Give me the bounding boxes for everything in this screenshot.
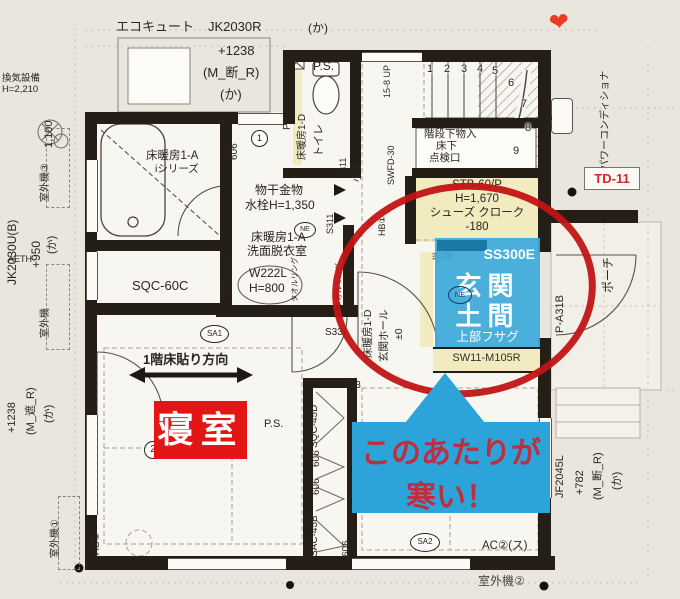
wall: [85, 240, 232, 251]
label-tenkenko: 点検口: [429, 153, 461, 164]
wall: [538, 50, 551, 222]
cold-arrow-icon: [405, 373, 485, 423]
wall: [85, 112, 238, 124]
step-4: 4: [477, 64, 483, 76]
step-3: 3: [461, 64, 467, 76]
outside-steps: [556, 388, 640, 438]
label-bath-heating: 床暖房1-A: [146, 150, 198, 162]
label-w222l: W222L: [249, 267, 287, 280]
label-suisen: 水栓H=1,350: [245, 199, 315, 212]
label-toilet-heating: 床暖房1-D: [297, 114, 309, 160]
label-p1238: +1238: [218, 44, 255, 58]
sa1-mark: SA1: [200, 325, 229, 343]
ne-mark-entrance: NE: [448, 286, 472, 304]
label-m-sha-r: (M_遮_R): [25, 387, 37, 435]
window: [352, 558, 470, 570]
window: [362, 52, 422, 62]
label-d606-d: 606: [341, 540, 353, 557]
label-komado: 小窓: [352, 162, 364, 182]
label-kanki1: 換気設備: [2, 74, 40, 84]
window: [168, 558, 286, 570]
label-wash-heating: 床暖房1-A: [251, 231, 306, 244]
label-gaiki1: 室外機①: [50, 519, 62, 558]
bedroom-badge: 寝室: [154, 401, 247, 459]
wall: [412, 168, 538, 178]
label-bath-series: iシリーズ: [155, 164, 199, 175]
label-toilet: トイレ: [313, 124, 325, 157]
label-s311a: S311: [337, 158, 349, 178]
wall: [412, 118, 538, 128]
label-h800: H=800: [249, 282, 285, 295]
label-gaiki3: 室外機③: [40, 163, 52, 202]
label-swfd30: SWFD-30: [385, 145, 397, 185]
label-s311b: S311: [324, 214, 336, 234]
entrance-highlight: SS300E 玄関 土間 上部フサグ NE: [435, 238, 540, 347]
label-jk2030u: JK2030U(B): [6, 220, 18, 285]
label-kanki2: H=2,210: [2, 85, 38, 95]
label-porch: ポーチ: [602, 257, 614, 293]
label-powercond: パワーコンディショナ: [600, 71, 612, 170]
label-up: 15-8 UP: [381, 65, 393, 98]
wall: [85, 556, 555, 570]
step-9: 9: [513, 146, 519, 158]
bathtub: [101, 124, 222, 236]
td11-tag: TD-11: [584, 167, 640, 190]
label-d606-top: 606: [229, 143, 241, 160]
label-monoire: 階段下物入: [424, 129, 477, 140]
label-towel1: タオルリング: [219, 253, 231, 298]
label-sac45b: SAC-45B: [309, 515, 321, 557]
cold-callout: このあたりが 寒い！: [352, 422, 550, 513]
window: [238, 113, 284, 125]
floorplan-canvas: エコキュート JK2030R +1238 (M_断_R) (か) (か) P.S…: [0, 0, 680, 599]
label-floor-direction: 1階床貼り方向: [143, 353, 228, 367]
label-gaiki2: 室外機②: [478, 575, 525, 588]
step-6: 6: [508, 78, 514, 90]
label-d606-c: 606: [311, 478, 323, 495]
wall: [350, 50, 361, 178]
label-jk2030r: JK2030R: [208, 20, 261, 34]
label-ka4: (か): [611, 472, 623, 490]
entrance-highlight-tab: [437, 240, 487, 251]
entrance-note: 上部フサグ: [435, 326, 540, 345]
window: [86, 252, 98, 300]
label-jf2045l: JF2045L: [554, 455, 566, 498]
label-ph: PH: [282, 116, 294, 130]
label-sqc45d: SQC-45D: [309, 405, 321, 448]
label-p782: +782: [574, 470, 586, 495]
step-8: 8: [525, 123, 531, 135]
label-gaiki: 室外機: [40, 308, 52, 338]
window: [86, 160, 98, 232]
cold-callout-line1: このあたりが: [352, 428, 550, 472]
step-7: 7: [521, 99, 527, 111]
step-5: 5: [492, 66, 498, 78]
step-1: 1: [427, 64, 433, 76]
label-l1: ①L: [544, 115, 556, 130]
label-ka3: (か): [43, 405, 55, 423]
wall: [220, 112, 232, 251]
label-s33b: S33: [343, 381, 361, 392]
label-aeth: AETH: [8, 255, 32, 265]
label-ac2: AC②(ス): [482, 540, 527, 552]
label-p1238-left: +1238: [6, 402, 18, 433]
circled-1: 1: [251, 130, 268, 147]
label-ka-top: (か): [308, 22, 328, 35]
wall: [85, 303, 232, 315]
label-ps-bedroom: P.S.: [264, 419, 283, 431]
label-ac1: AC①: [91, 532, 103, 555]
label-m-dan-r: (M_断_R): [203, 66, 259, 80]
label-ecocute: エコキュート: [116, 20, 194, 34]
label-senmen: 洗面脱衣室: [247, 245, 307, 258]
label-ps-top: P.S.: [313, 60, 334, 73]
label-sqc60c: SQC-60C: [132, 279, 188, 293]
label-ka: (か): [220, 88, 242, 102]
window: [86, 415, 98, 515]
sa2-mark: SA2: [410, 533, 440, 552]
label-yukashita: 床下: [436, 141, 457, 152]
cold-callout-line2: 寒い！: [352, 472, 550, 516]
label-m-dan-r2: (M_断_R): [592, 452, 604, 500]
label-ka2: (か): [46, 236, 58, 254]
heart-icon: ❤: [548, 7, 571, 38]
label-towel2: タオルリング: [289, 257, 301, 302]
step-2: 2: [444, 64, 450, 76]
label-d606-b: 606: [311, 450, 323, 467]
label-d1100: 1,100: [43, 120, 55, 148]
label-monohoshi: 物干金物: [255, 184, 303, 197]
entrance-code: SS300E: [484, 246, 535, 262]
